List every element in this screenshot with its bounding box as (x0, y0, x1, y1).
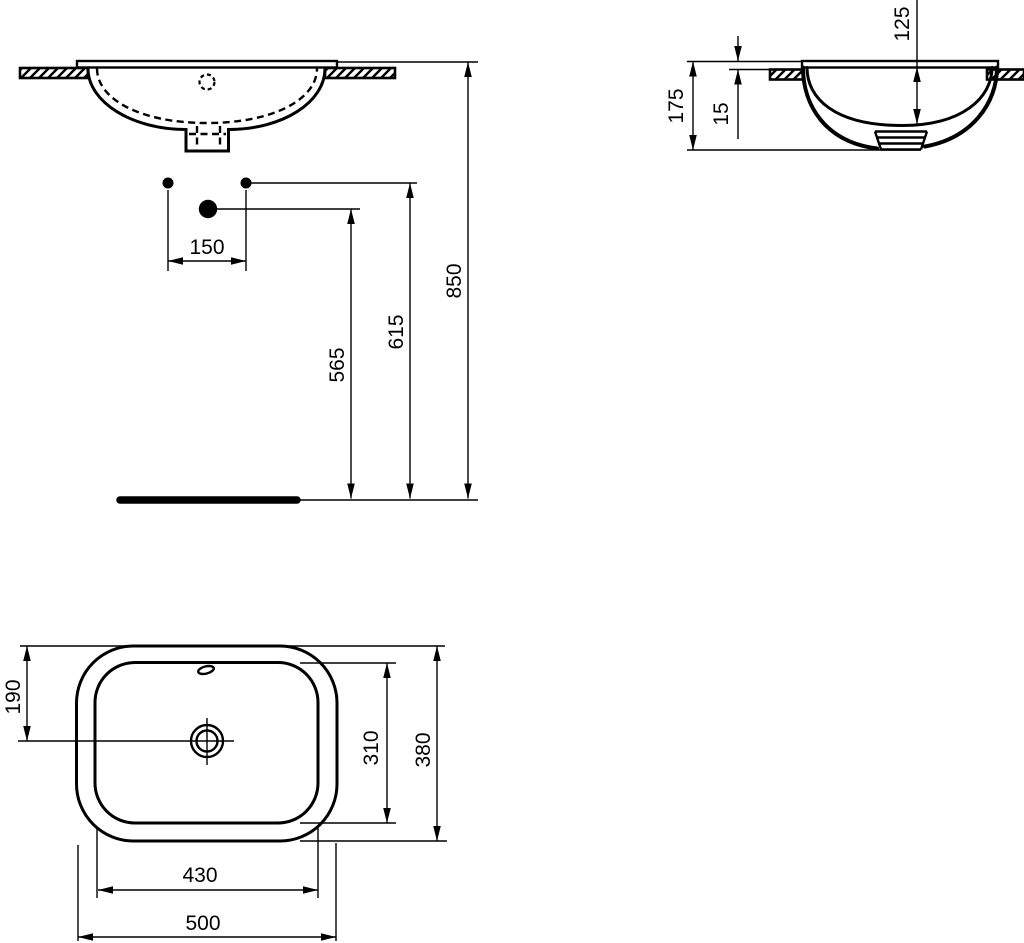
dimension-850: 850 (443, 62, 472, 499)
arrowhead (406, 183, 414, 198)
dim-label-565: 565 (326, 347, 349, 382)
arrowhead (464, 484, 472, 499)
front-view: 150 565 615 850 (20, 61, 478, 500)
dimension-565: 565 (326, 209, 355, 499)
arrowhead (78, 933, 93, 941)
dimension-380: 380 (412, 646, 441, 841)
bowl-inner-hidden-line (97, 69, 317, 124)
tap-hole-dot-left (163, 178, 174, 189)
bowl-outline-front (88, 69, 325, 152)
counter-section-left (20, 68, 88, 78)
bowl-outer-wall-front (803, 68, 877, 149)
overflow-hole-hidden (200, 75, 215, 90)
dim-label-500: 500 (185, 912, 220, 935)
arrowhead (383, 663, 391, 678)
counter-section-right (325, 68, 395, 78)
technical-drawing-page: 150 565 615 850 (0, 0, 1024, 943)
dim-label-15: 15 (710, 102, 733, 125)
arrowhead (98, 886, 113, 894)
arrowhead (347, 484, 355, 499)
arrowhead (23, 646, 31, 661)
dimension-430: 430 (98, 864, 318, 894)
arrowhead (464, 62, 472, 77)
bowl-inner-profile (807, 68, 992, 126)
dimension-150: 150 (168, 236, 246, 265)
arrowhead (734, 70, 742, 85)
arrowhead (231, 257, 246, 265)
dimension-615: 615 (385, 183, 414, 499)
overflow-slot-plan (197, 665, 214, 676)
dim-label-175: 175 (665, 88, 688, 123)
dimension-500: 500 (78, 912, 336, 941)
basin-rim-side (802, 61, 998, 68)
basin-rim-front (77, 61, 337, 68)
arrowhead (913, 109, 921, 124)
arrowhead (433, 826, 441, 841)
arrowhead (433, 646, 441, 661)
dimension-190: 190 (2, 646, 31, 741)
dimension-15: 15 (710, 36, 742, 139)
arrowhead (303, 886, 318, 894)
dim-label-430: 430 (182, 864, 217, 887)
arrowhead (347, 209, 355, 224)
arrowhead (913, 67, 921, 82)
side-view: 175 15 125 (665, 0, 1024, 150)
arrowhead (734, 46, 742, 61)
dim-label-150: 150 (189, 236, 224, 259)
dim-label-380: 380 (412, 732, 435, 767)
arrowhead (689, 135, 697, 150)
dimension-310: 310 (360, 663, 391, 823)
basin-dimension-drawing: 150 565 615 850 (0, 0, 1024, 943)
plan-view: 190 310 380 430 500 (2, 646, 447, 941)
dim-label-615: 615 (385, 314, 408, 349)
arrowhead (23, 726, 31, 741)
arrowhead (406, 484, 414, 499)
arrowhead (321, 933, 336, 941)
dim-label-190: 190 (2, 679, 25, 714)
arrowhead (168, 257, 183, 265)
dim-label-310: 310 (360, 730, 383, 765)
waste-trap-steps (875, 132, 927, 150)
arrowhead (383, 808, 391, 823)
counter-section-front (770, 70, 803, 80)
dimension-175: 175 (665, 62, 697, 151)
dim-label-125: 125 (891, 6, 914, 41)
dim-label-850: 850 (443, 263, 466, 298)
arrowhead (689, 62, 697, 77)
